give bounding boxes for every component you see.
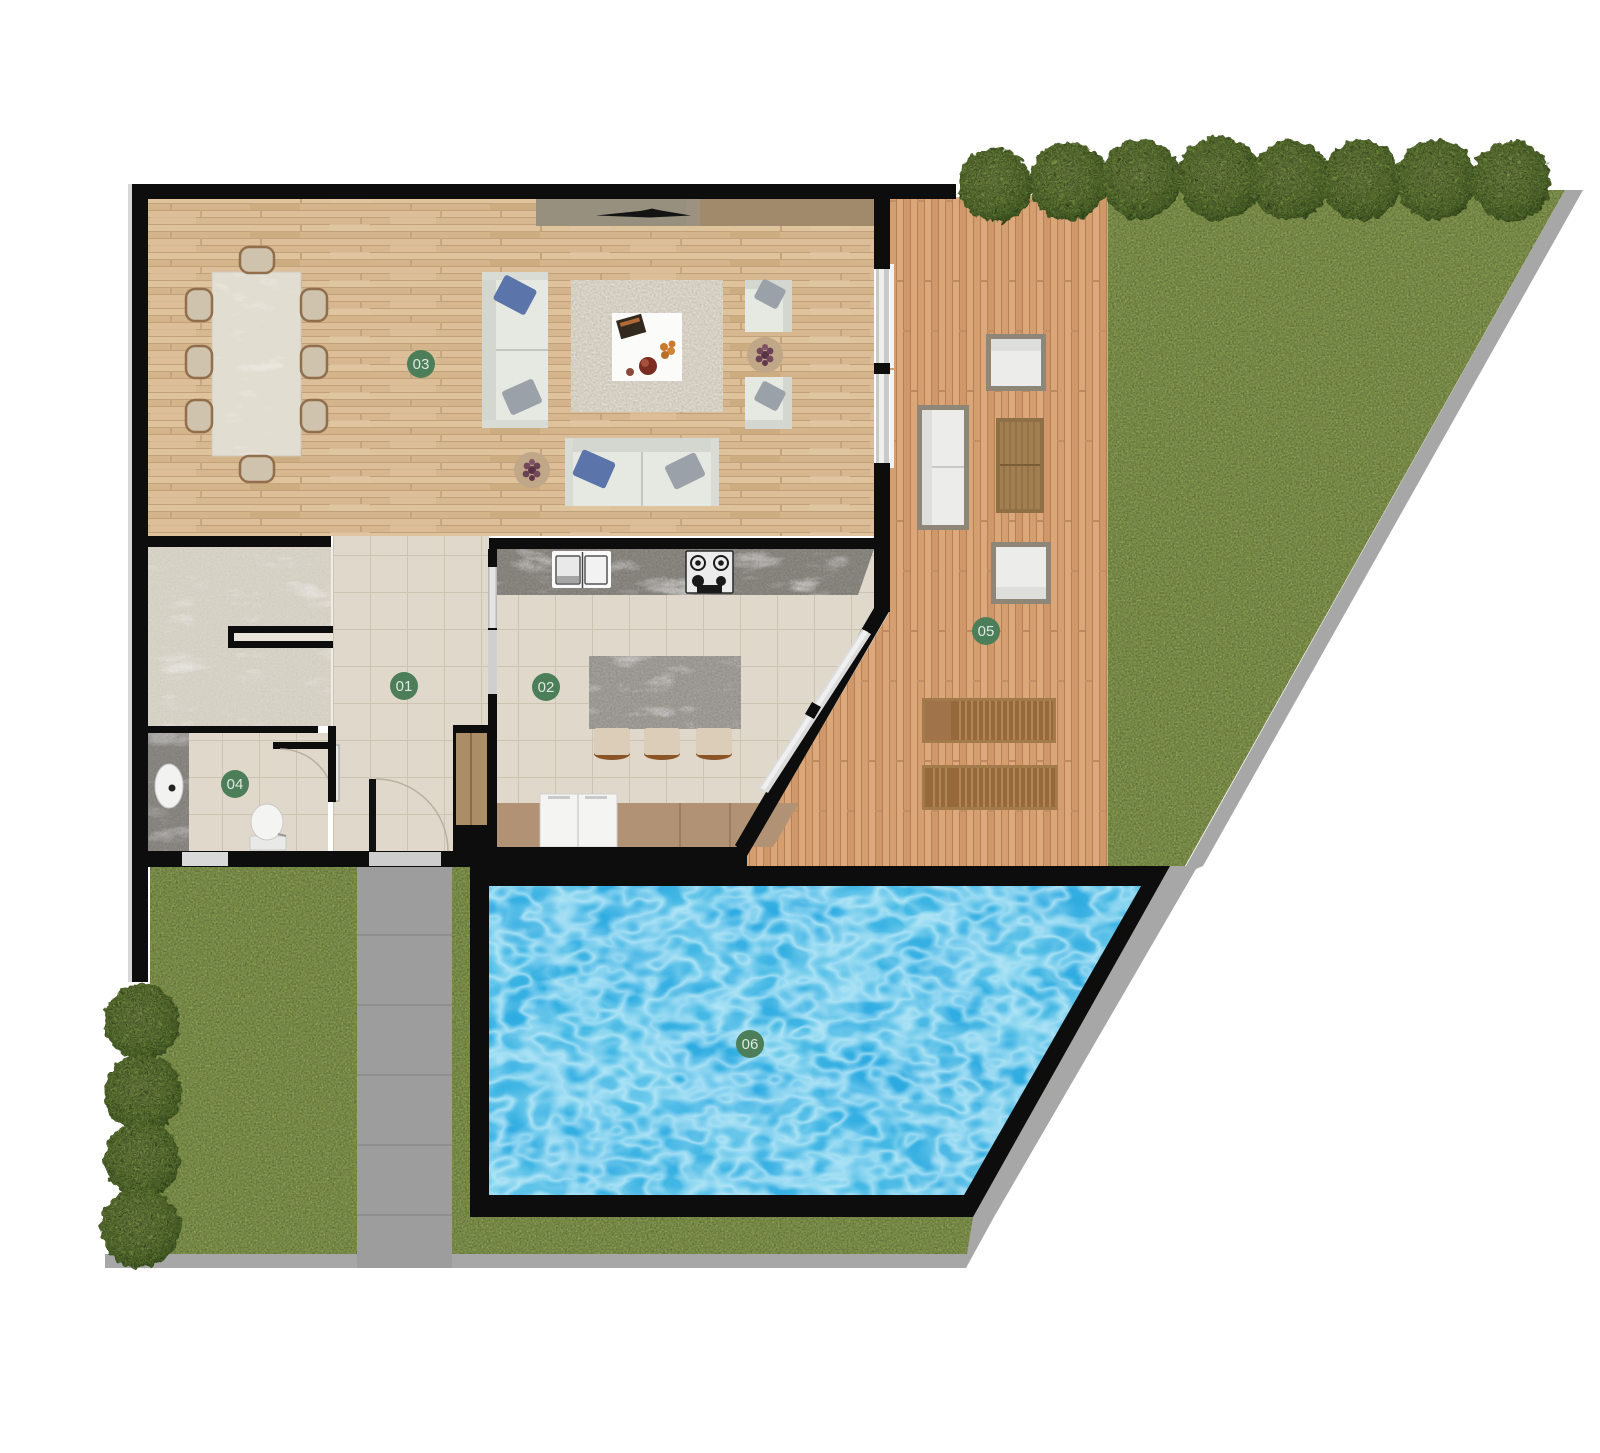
svg-text:06: 06	[742, 1036, 759, 1053]
svg-text:05: 05	[978, 623, 995, 640]
svg-text:03: 03	[413, 356, 430, 373]
svg-text:04: 04	[227, 776, 244, 793]
svg-text:02: 02	[538, 679, 555, 696]
svg-text:01: 01	[396, 678, 413, 695]
